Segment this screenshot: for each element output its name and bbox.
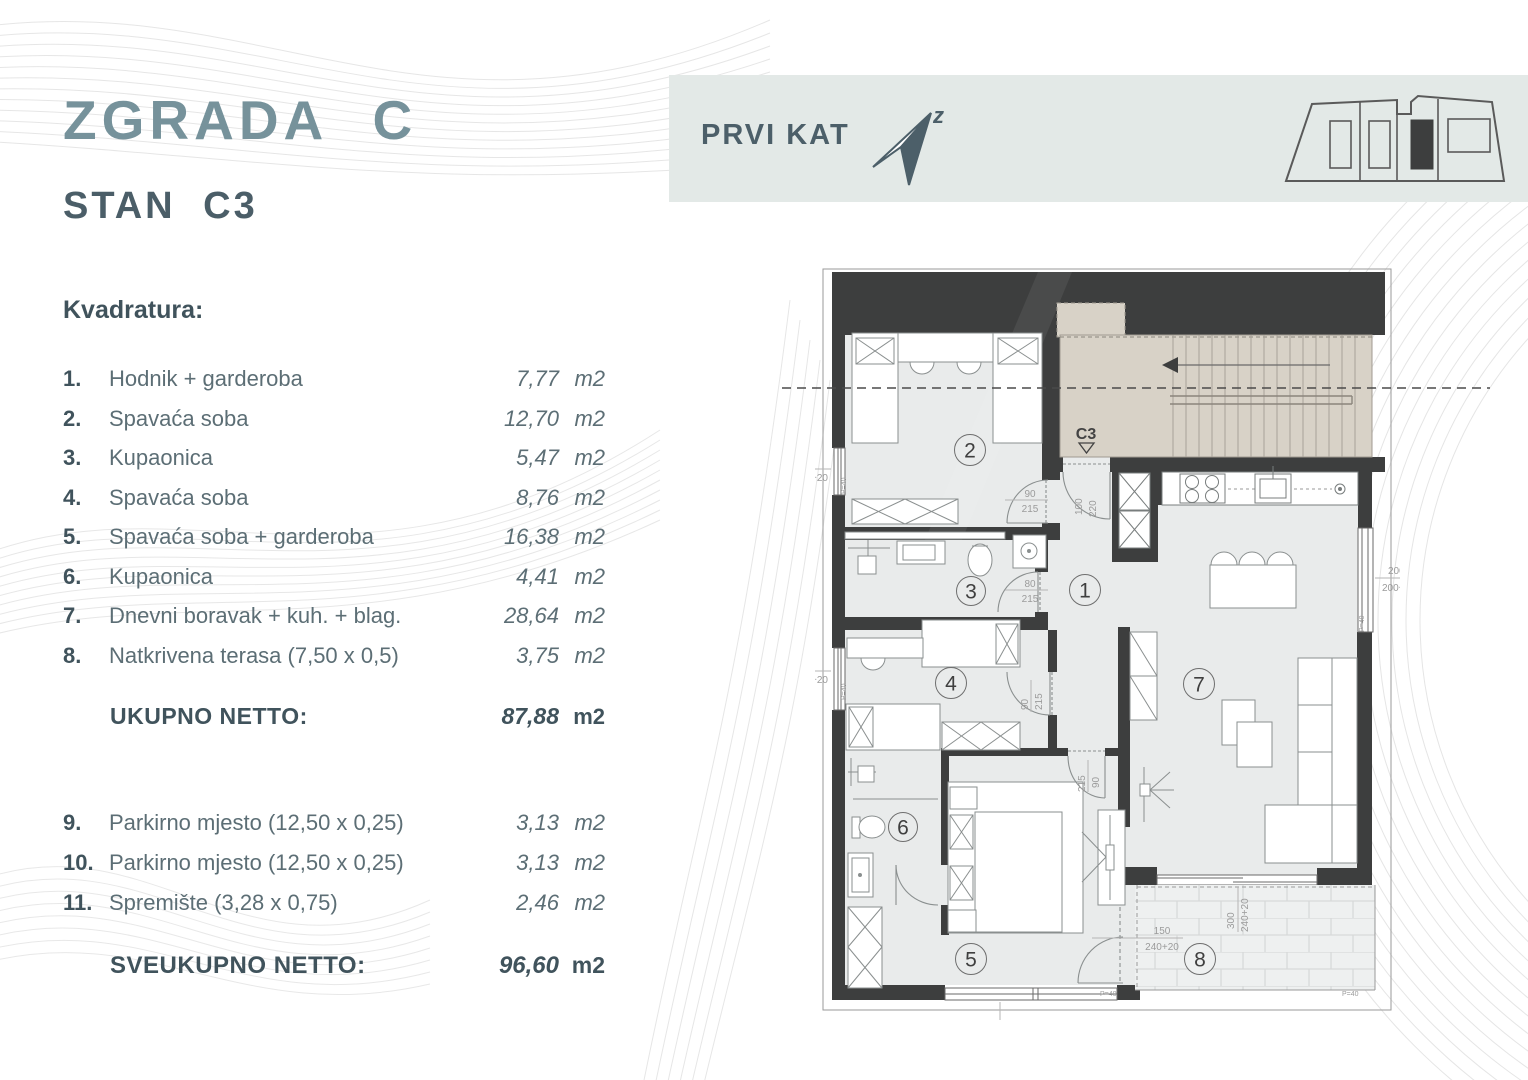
installation-shaft: [1119, 473, 1150, 548]
item-label: Hodnik + garderoba: [109, 366, 467, 392]
item-value: 28,64: [467, 603, 559, 629]
item-label: Spremište (3,28 x 0,75): [109, 890, 467, 916]
svg-text:5: 5: [965, 948, 977, 971]
svg-text:4: 4: [945, 672, 957, 695]
item-value: 2,46: [467, 890, 559, 916]
item-unit: m2: [559, 524, 605, 550]
total-value: 96,60: [467, 952, 559, 980]
svg-text:8: 8: [1194, 948, 1206, 971]
svg-text:215: 215: [1034, 693, 1045, 710]
list-item: 7. Dnevni boravak + kuh. + blag. 28,64 m…: [63, 603, 605, 643]
item-unit: m2: [559, 643, 605, 669]
list-item: 10. Parkirno mjesto (12,50 x 0,25) 3,13 …: [63, 850, 605, 890]
svg-text:90: 90: [1024, 489, 1036, 500]
item-number: 1.: [63, 366, 109, 392]
svg-text:215: 215: [1077, 775, 1088, 792]
item-value: 8,76: [467, 485, 559, 511]
subtotal-value: 87,88: [467, 703, 559, 730]
svg-text:215: 215: [1022, 504, 1039, 515]
svg-text:150: 150: [1154, 926, 1171, 937]
list-item: 1. Hodnik + garderoba 7,77 m2: [63, 366, 605, 406]
svg-text:P=40: P=40: [1342, 991, 1359, 998]
floor-label: PRVI KAT: [701, 119, 850, 152]
item-number: 6.: [63, 564, 109, 590]
item-label: Kupaonica: [109, 445, 467, 471]
building-title: ZGRADA C: [63, 88, 417, 152]
item-number: 10.: [63, 850, 109, 876]
room-list: 1. Hodnik + garderoba 7,77 m2 2. Spavaća…: [63, 366, 605, 682]
item-number: 2.: [63, 406, 109, 432]
item-label: Natkrivena terasa (7,50 x 0,5): [109, 643, 467, 669]
item-number: 9.: [63, 810, 109, 836]
svg-text:90: 90: [1091, 776, 1102, 788]
item-label: Kupaonica: [109, 564, 467, 590]
north-arrow-icon: z: [865, 101, 951, 197]
svg-text:200+20: 200+20: [815, 675, 828, 686]
section-reference-line: [780, 381, 1492, 393]
item-label: Spavaća soba + garderoba: [109, 524, 467, 550]
total-label: SVEUKUPNO NETTO:: [110, 952, 467, 980]
floorplan-sheet: ZGRADA C STAN C3 Kvadratura: 1. Hodnik +…: [0, 0, 1528, 1080]
extras-list: 9. Parkirno mjesto (12,50 x 0,25) 3,13 m…: [63, 810, 605, 930]
item-value: 12,70: [467, 406, 559, 432]
list-item: 9. Parkirno mjesto (12,50 x 0,25) 3,13 m…: [63, 810, 605, 850]
apartment-label: C3: [1076, 426, 1097, 443]
item-value: 7,77: [467, 366, 559, 392]
floor-header-band: PRVI KAT z: [669, 75, 1528, 202]
svg-text:P=40: P=40: [841, 477, 848, 494]
subtotal-row: UKUPNO NETTO: 87,88 m2: [63, 703, 605, 730]
svg-text:3: 3: [965, 580, 977, 603]
item-unit: m2: [559, 366, 605, 392]
svg-text:1: 1: [1079, 579, 1091, 602]
kitchen-counter: [1162, 466, 1358, 505]
item-unit: m2: [559, 485, 605, 511]
svg-text:300: 300: [1226, 912, 1237, 929]
apartment-title: STAN C3: [63, 185, 258, 228]
floorplan-drawing: C3: [815, 260, 1400, 1020]
svg-text:P=40: P=40: [1359, 615, 1366, 632]
list-item: 4. Spavaća soba 8,76 m2: [63, 485, 605, 525]
item-label: Parkirno mjesto (12,50 x 0,25): [109, 810, 467, 836]
svg-text:200: 200: [1388, 566, 1400, 577]
item-unit: m2: [559, 445, 605, 471]
svg-text:220: 220: [1088, 500, 1099, 517]
item-unit: m2: [559, 850, 605, 876]
item-number: 3.: [63, 445, 109, 471]
svg-text:2: 2: [964, 439, 976, 462]
item-unit: m2: [559, 890, 605, 916]
svg-text:6: 6: [897, 816, 909, 839]
subtotal-unit: m2: [559, 704, 605, 730]
svg-text:100: 100: [1074, 498, 1085, 515]
total-row: SVEUKUPNO NETTO: 96,60 m2: [63, 952, 605, 980]
site-plan-icon: [1278, 91, 1508, 186]
list-item: 3. Kupaonica 5,47 m2: [63, 445, 605, 485]
svg-text:240+20: 240+20: [1145, 942, 1179, 953]
item-number: 7.: [63, 603, 109, 629]
svg-text:200+20: 200+20: [815, 473, 828, 484]
item-number: 4.: [63, 485, 109, 511]
item-label: Spavaća soba: [109, 485, 467, 511]
item-value: 16,38: [467, 524, 559, 550]
item-value: 3,13: [467, 810, 559, 836]
list-item: 11. Spremište (3,28 x 0,75) 2,46 m2: [63, 890, 605, 930]
svg-text:P=40: P=40: [841, 683, 848, 700]
list-item: 6. Kupaonica 4,41 m2: [63, 564, 605, 604]
item-number: 11.: [63, 890, 109, 916]
item-unit: m2: [559, 406, 605, 432]
list-item: 8. Natkrivena terasa (7,50 x 0,5) 3,75 m…: [63, 643, 605, 683]
item-label: Parkirno mjesto (12,50 x 0,25): [109, 850, 467, 876]
svg-text:P=40: P=40: [1100, 991, 1117, 998]
item-value: 5,47: [467, 445, 559, 471]
item-number: 5.: [63, 524, 109, 550]
svg-text:215: 215: [1022, 594, 1039, 605]
item-value: 3,13: [467, 850, 559, 876]
subtotal-label: UKUPNO NETTO:: [110, 703, 467, 730]
svg-text:240+20: 240+20: [1240, 898, 1251, 932]
svg-text:90: 90: [1020, 698, 1031, 710]
item-label: Spavaća soba: [109, 406, 467, 432]
section-label: Kvadratura:: [63, 296, 203, 325]
item-unit: m2: [559, 603, 605, 629]
item-value: 3,75: [467, 643, 559, 669]
item-label: Dnevni boravak + kuh. + blag.: [109, 603, 467, 629]
svg-text:200+20: 200+20: [1382, 583, 1400, 594]
list-item: 2. Spavaća soba 12,70 m2: [63, 406, 605, 446]
item-number: 8.: [63, 643, 109, 669]
svg-text:z: z: [932, 103, 944, 128]
item-unit: m2: [559, 564, 605, 590]
svg-text:7: 7: [1193, 673, 1205, 696]
item-unit: m2: [559, 810, 605, 836]
dining-table: [1210, 552, 1296, 608]
svg-text:80: 80: [1024, 579, 1036, 590]
list-item: 5. Spavaća soba + garderoba 16,38 m2: [63, 524, 605, 564]
total-unit: m2: [559, 952, 605, 979]
item-value: 4,41: [467, 564, 559, 590]
